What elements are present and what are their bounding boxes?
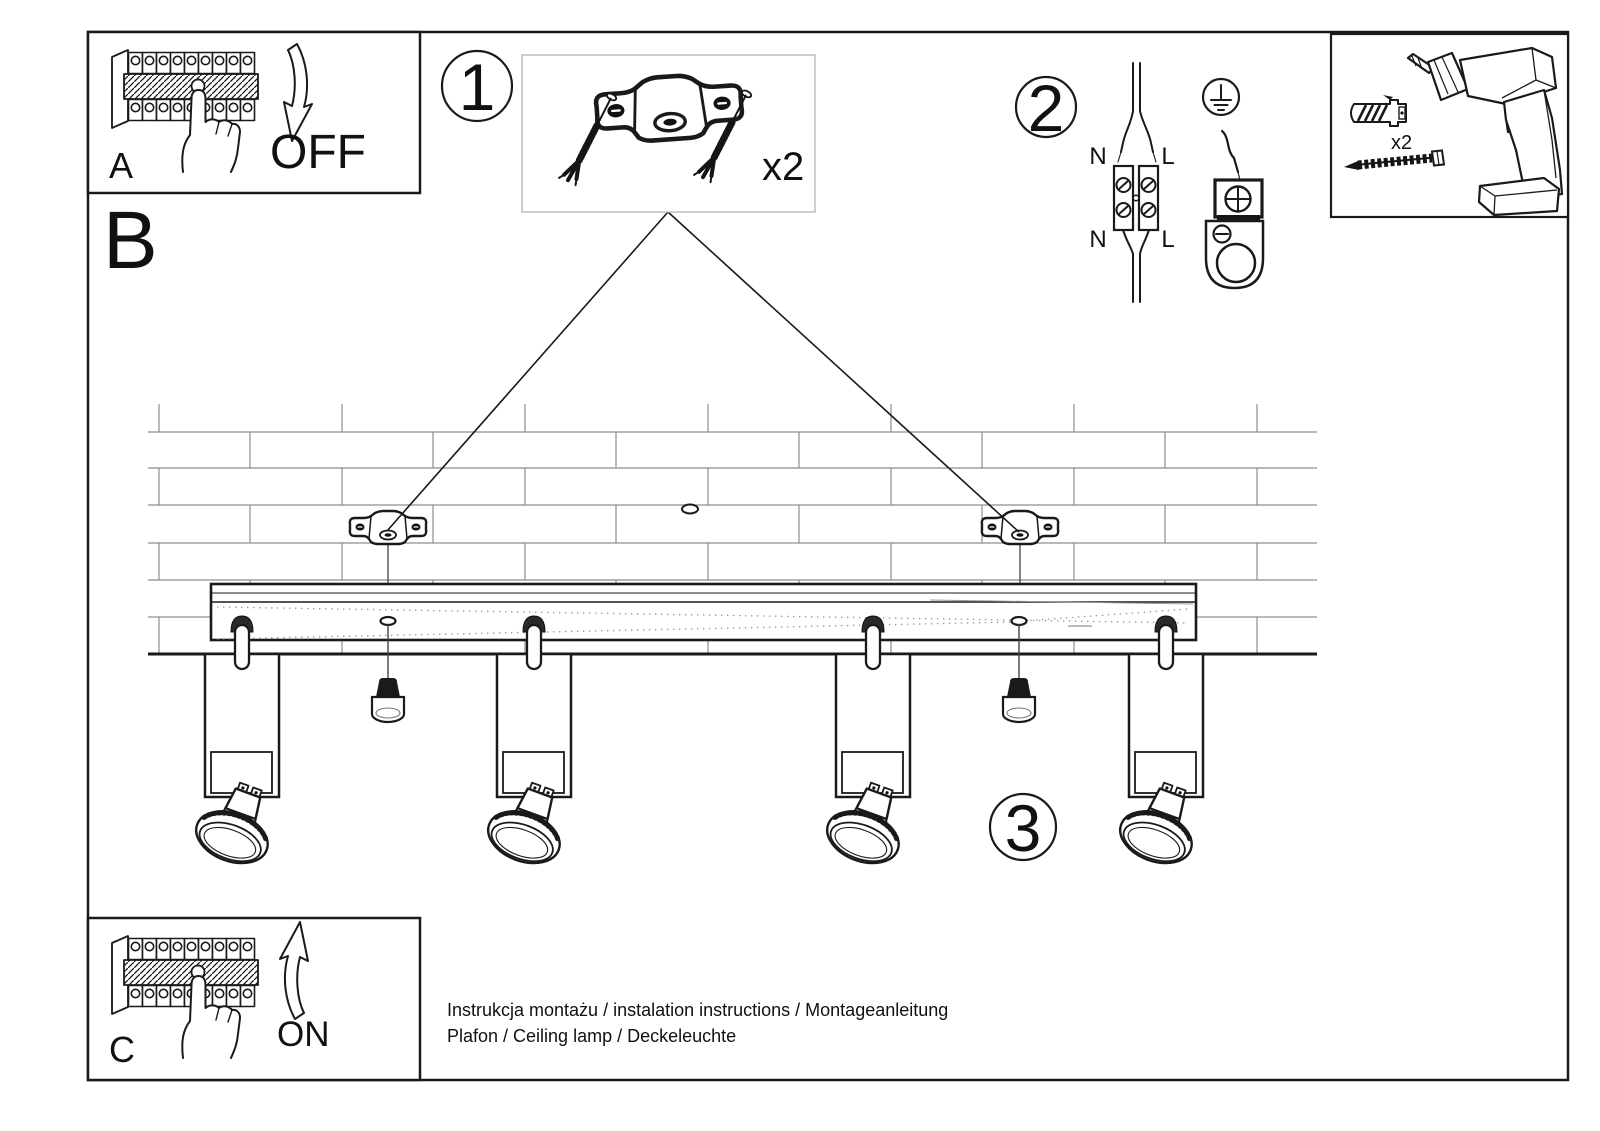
footer-line1: Instrukcja montażu / instalation instruc… <box>447 1000 948 1020</box>
wall-center-hole <box>682 505 698 514</box>
panel-box-a: A OFF <box>88 32 420 193</box>
panel-box-c: C ON <box>88 918 420 1080</box>
terminal-label-n-top: N <box>1089 143 1106 170</box>
tools-box: x2 <box>1331 34 1568 217</box>
step2-number: 2 <box>1028 71 1065 145</box>
step1-number: 1 <box>459 50 496 124</box>
parts-qty: x2 <box>762 145 804 189</box>
tools-qty: x2 <box>1391 132 1412 154</box>
supply-cable-top <box>1133 63 1140 111</box>
panel-a-label: A <box>109 145 133 186</box>
terminal-label-l-top: L <box>1161 143 1174 170</box>
wall-bracket-right <box>982 511 1058 544</box>
spotlight-arm <box>836 654 910 797</box>
bar-screw-hole-right <box>1012 617 1027 625</box>
bar-screw-hole-left <box>381 617 396 625</box>
terminal-label-n-bottom: N <box>1089 226 1106 253</box>
ceiling-bar <box>211 584 1196 640</box>
panel-c-label: C <box>109 1029 135 1070</box>
ground-wire <box>1222 131 1238 172</box>
lamp-cable-bottom <box>1123 230 1149 302</box>
section-b-label: B <box>103 195 158 286</box>
mounting-pin <box>523 616 545 669</box>
spotlight-arm <box>205 654 279 797</box>
step1-parts: 1 x2 <box>442 50 815 212</box>
spotlight-arm <box>1129 654 1203 797</box>
footer-line2: Plafon / Ceiling lamp / Deckeleuchte <box>447 1026 736 1046</box>
terminal-block <box>1114 166 1158 230</box>
mounting-knob <box>1003 678 1035 722</box>
bracket-alignment-lines <box>388 544 1020 583</box>
wall-bracket-left <box>350 511 426 544</box>
spotlight-arm <box>497 654 571 797</box>
step3-number: 3 <box>1005 791 1042 865</box>
panel-a-state: OFF <box>270 126 366 179</box>
callout-lines <box>387 212 1019 532</box>
mounting-knob <box>372 678 404 722</box>
terminal-label-l-bottom: L <box>1161 226 1174 253</box>
step2-wiring: 2 N L N L <box>1016 63 1263 302</box>
panel-c-state: ON <box>277 1015 330 1054</box>
mounting-pin <box>231 616 253 669</box>
instruction-sheet: A OFF B C ON 1 x2 2 N L <box>0 0 1600 1131</box>
ground-symbol-icon <box>1203 79 1239 115</box>
mounting-pin <box>862 616 884 669</box>
mounting-pin <box>1155 616 1177 669</box>
ground-terminal-icon <box>1206 180 1263 288</box>
